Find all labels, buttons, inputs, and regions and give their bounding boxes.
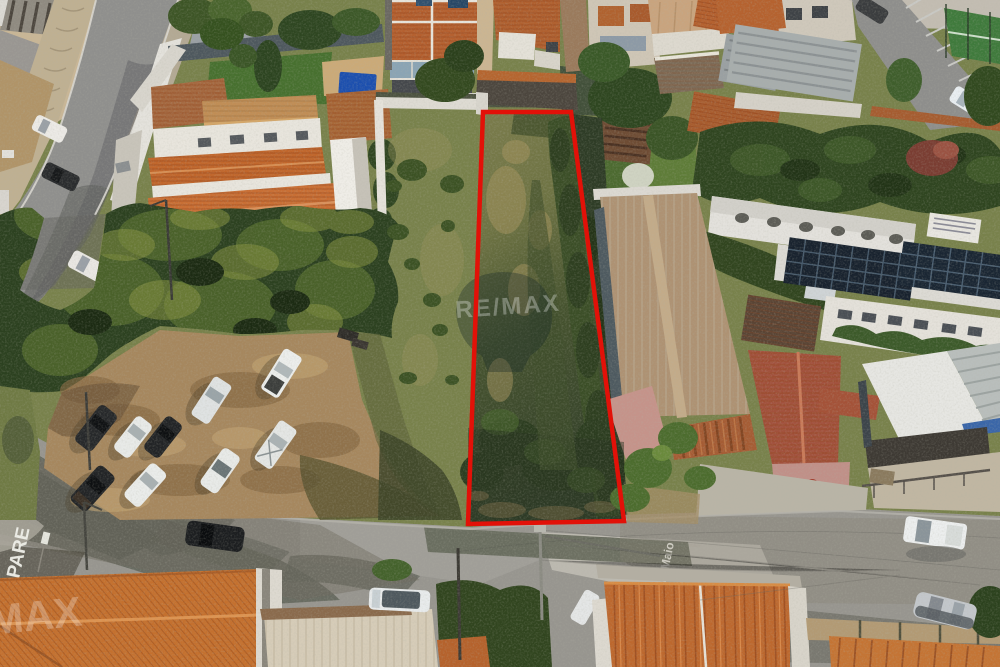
svg-text:MAX: MAX bbox=[0, 587, 84, 643]
